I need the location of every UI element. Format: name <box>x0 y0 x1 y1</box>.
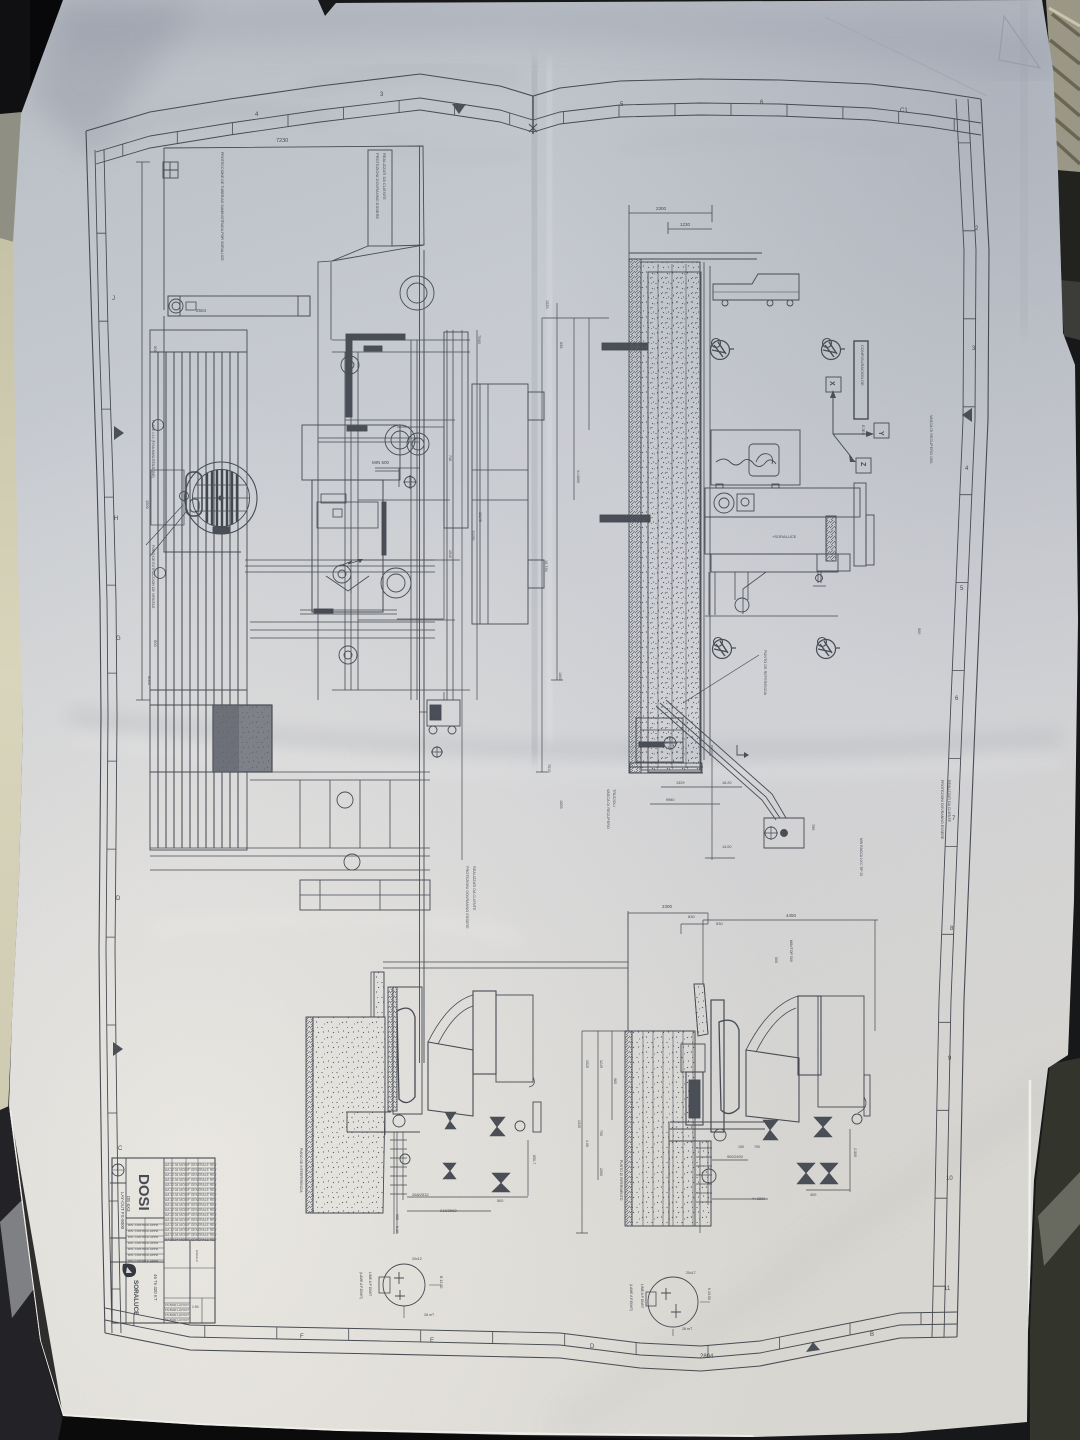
svg-text:1665: 1665 <box>558 672 562 680</box>
svg-text:4450: 4450 <box>786 913 797 918</box>
svg-text:2-500: 2-500 <box>853 1148 857 1157</box>
svg-text:6.10: 6.10 <box>395 1226 399 1233</box>
svg-text:46 Tn 320 KT: 46 Tn 320 KT <box>153 1274 158 1301</box>
svg-text:7563: 7563 <box>477 335 482 345</box>
svg-text:500: 500 <box>497 1199 503 1203</box>
svg-text:700: 700 <box>754 1145 760 1149</box>
svg-text:AA 12.04 MODIF GENERALE REV: AA 12.04 MODIF GENERALE REV <box>165 1188 217 1192</box>
svg-text:TRUCIOLI: TRUCIOLI <box>612 789 616 807</box>
svg-text:F: F <box>300 1334 304 1340</box>
svg-text:2300: 2300 <box>656 206 667 211</box>
svg-text:FS 8000 LAYOUT: FS 8000 LAYOUT <box>165 1308 189 1312</box>
svg-text:965: 965 <box>613 1078 617 1084</box>
svg-text:AA 12.04 MODIF GENERALE REV: AA 12.04 MODIF GENERALE REV <box>165 1193 217 1197</box>
svg-text:AA 12.04 MODIF GENERALE REV: AA 12.04 MODIF GENERALE REV <box>165 1228 217 1232</box>
svg-text:850-7: 850-7 <box>532 1155 536 1164</box>
svg-text:1545: 1545 <box>448 550 452 558</box>
svg-text:789: 789 <box>811 824 815 830</box>
svg-text:635: 635 <box>559 342 563 348</box>
svg-text:500: 500 <box>153 346 158 353</box>
svg-text:J: J <box>112 296 115 302</box>
svg-text:150: 150 <box>738 1145 744 1149</box>
svg-text:20x17: 20x17 <box>686 1271 696 1275</box>
svg-text:B: B <box>870 1332 874 1338</box>
svg-text:DIS. CONTROL APPR: DIS. CONTROL APPR <box>128 1247 159 1251</box>
svg-text:11195: 11195 <box>471 530 476 541</box>
svg-text:PLANE 1:10 (F.ISA MANUTENZIONE: PLANE 1:10 (F.ISA MANUTENZIONE) <box>151 420 155 478</box>
svg-text:(LAME A P.DIMIT): (LAME A P.DIMIT) <box>359 1272 363 1299</box>
svg-text:AA 12.04 MODIF GENERALE REV: AA 12.04 MODIF GENERALE REV <box>165 1173 217 1177</box>
svg-text:400: 400 <box>810 1193 816 1197</box>
svg-text:DOSI: DOSI <box>135 1174 152 1211</box>
svg-text:748: 748 <box>448 455 452 461</box>
svg-text:AA 12.04 MODIF GENERALE REV: AA 12.04 MODIF GENERALE REV <box>165 1218 217 1222</box>
svg-text:REALIZZATI DA CLIENTE: REALIZZATI DA CLIENTE <box>382 153 387 200</box>
svg-text:PROTEZIONI DOVRANNO ESSERE: PROTEZIONI DOVRANNO ESSERE <box>940 780 944 840</box>
svg-text:20x12: 20x12 <box>412 1257 422 1261</box>
svg-text:700: 700 <box>599 1130 603 1136</box>
svg-text:28 mT: 28 mT <box>424 1313 435 1317</box>
svg-text:1230: 1230 <box>680 222 691 227</box>
svg-text:FS 8000 LAYOUT: FS 8000 LAYOUT <box>165 1313 189 1317</box>
svg-text:1329: 1329 <box>676 781 684 785</box>
svg-text:AA 12.04 MODIF GENERALE REV: AA 12.04 MODIF GENERALE REV <box>165 1178 217 1182</box>
svg-text:AA 12.04 MODIF GENERALE REV: AA 12.04 MODIF GENERALE REV <box>165 1238 217 1242</box>
svg-text:D: D <box>116 896 121 902</box>
svg-text:AA 12.04 MODIF GENERALE REV: AA 12.04 MODIF GENERALE REV <box>165 1168 217 1172</box>
svg-text:900/2400: 900/2400 <box>727 1155 743 1159</box>
svg-text:FS 8000 LAYOUT: FS 8000 LAYOUT <box>165 1318 189 1322</box>
svg-text:218/2582: 218/2582 <box>440 1208 457 1213</box>
svg-text:530: 530 <box>716 921 723 926</box>
svg-text:Y=2800: Y=2800 <box>752 1197 765 1201</box>
svg-text:(LAME A P.DIMIT): (LAME A P.DIMIT) <box>629 1284 633 1311</box>
svg-text:7230: 7230 <box>276 138 288 144</box>
svg-text:DIS. CONTROL APPR: DIS. CONTROL APPR <box>128 1253 159 1257</box>
svg-text:AA 12.04 MODIF GENERALE REV: AA 12.04 MODIF GENERALE REV <box>165 1163 217 1167</box>
svg-text:6.13.50: 6.13.50 <box>707 1288 711 1300</box>
svg-text:DIS. CONTROL APPR: DIS. CONTROL APPR <box>128 1223 159 1227</box>
svg-text:1005: 1005 <box>559 800 563 808</box>
svg-text:ESCALA: ESCALA <box>195 1250 199 1262</box>
svg-text:6005: 6005 <box>147 676 152 686</box>
svg-text:AA 12.04 MODIF GENERALE REV: AA 12.04 MODIF GENERALE REV <box>165 1183 217 1187</box>
svg-text:4.00: 4.00 <box>585 1140 589 1147</box>
svg-text:500: 500 <box>917 628 921 634</box>
svg-text:14.00: 14.00 <box>722 845 732 849</box>
svg-text:AA 12.04 MODIF GENERALE REV: AA 12.04 MODIF GENERALE REV <box>165 1233 217 1237</box>
svg-text:DIS. CONTROL APPR: DIS. CONTROL APPR <box>128 1229 159 1233</box>
svg-text:AA 12.04 MODIF GENERALE REV: AA 12.04 MODIF GENERALE REV <box>165 1213 217 1217</box>
svg-text:PUNTO DI RIFERIMENTO: PUNTO DI RIFERIMENTO <box>619 1160 623 1201</box>
svg-text:G: G <box>116 636 121 642</box>
svg-text:830: 830 <box>688 914 695 919</box>
svg-text:1525: 1525 <box>585 1060 589 1068</box>
svg-text:B 13 50: B 13 50 <box>439 1276 443 1288</box>
svg-text:DIS. CONTROL APPR: DIS. CONTROL APPR <box>128 1259 159 1263</box>
svg-text:500: 500 <box>153 640 158 647</box>
svg-text:PIANO DE INTERFERENCIA: PIANO DE INTERFERENCIA <box>299 1148 303 1193</box>
svg-text:1:50: 1:50 <box>192 1305 199 1309</box>
svg-text:505: 505 <box>774 957 778 963</box>
svg-text:28 mT: 28 mT <box>682 1327 693 1331</box>
svg-text:FORO DE EXTRACCION DE VIRUTAS: FORO DE EXTRACCION DE VIRUTAS <box>151 545 155 609</box>
svg-text:LIME A P DIMIT: LIME A P DIMIT <box>640 1284 644 1308</box>
svg-text:2804: 2804 <box>700 1354 714 1360</box>
svg-text:1500: 1500 <box>145 500 150 510</box>
svg-text:10: 10 <box>946 1176 953 1182</box>
svg-text:2504: 2504 <box>196 308 207 313</box>
svg-text:CONFIGURACION DE: CONFIGURACION DE <box>860 345 865 386</box>
svg-text:REALIZZATI DA CLIENTE: REALIZZATI DA CLIENTE <box>947 780 951 823</box>
svg-text:DE 6X3: DE 6X3 <box>126 1196 131 1212</box>
svg-text:11: 11 <box>944 1286 951 1292</box>
svg-text:1525: 1525 <box>545 300 549 308</box>
svg-text:DIS. CONTROL APPR: DIS. CONTROL APPR <box>128 1241 159 1245</box>
svg-text:X: X <box>828 381 835 386</box>
svg-text:REALIZZATI DA CLIENTE: REALIZZATI DA CLIENTE <box>472 866 476 911</box>
svg-text:PROTEZIONI DOVRANNO ESSERE: PROTEZIONI DOVRANNO ESSERE <box>465 866 469 929</box>
svg-text:AA 12.04 MODIF GENERALE REV: AA 12.04 MODIF GENERALE REV <box>165 1208 217 1212</box>
svg-text:E: E <box>430 1338 434 1344</box>
svg-text:VASCA DI RECUPERO 100L: VASCA DI RECUPERO 100L <box>929 415 933 464</box>
svg-text:2300: 2300 <box>662 904 673 909</box>
svg-text:VASCA DI RECUPERO: VASCA DI RECUPERO <box>606 789 610 829</box>
svg-text:DIS. CONTROL APPR: DIS. CONTROL APPR <box>128 1235 159 1239</box>
svg-text:16.736: 16.736 <box>544 560 548 572</box>
svg-text:C: C <box>118 1146 123 1152</box>
svg-text:1249: 1249 <box>599 1060 603 1068</box>
svg-text:EJES: EJES <box>861 425 866 435</box>
svg-text:MIN/TOP 500: MIN/TOP 500 <box>789 940 793 962</box>
svg-text:PROTECCIONE DE TUBERIAS SUMINI: PROTECCIONE DE TUBERIAS SUMINISTRADA POR… <box>220 152 224 261</box>
svg-text:MIN RACCA 1000 TIP 25: MIN RACCA 1000 TIP 25 <box>859 838 863 876</box>
svg-text:PUNTO DE REFERENCIA: PUNTO DE REFERENCIA <box>763 650 767 696</box>
svg-text:9980: 9980 <box>666 798 674 802</box>
svg-text:AA 12.04 MODIF GENERALE REV: AA 12.04 MODIF GENERALE REV <box>165 1223 217 1227</box>
svg-text:268/2532: 268/2532 <box>412 1192 429 1197</box>
svg-text:AA 12.04 MODIF GENERALE REV: AA 12.04 MODIF GENERALE REV <box>165 1198 217 1202</box>
svg-text:C1: C1 <box>900 108 908 114</box>
svg-text:Z: Z <box>859 462 866 467</box>
svg-text:MIN 500: MIN 500 <box>372 460 390 465</box>
svg-text:AA 12.04 MODIF GENERALE REV: AA 12.04 MODIF GENERALE REV <box>165 1203 217 1207</box>
svg-text:FS 8000 LAYOUT: FS 8000 LAYOUT <box>165 1303 189 1307</box>
svg-text:10245: 10245 <box>478 512 482 522</box>
svg-text:16.20: 16.20 <box>722 781 732 785</box>
svg-text:1345: 1345 <box>577 1120 581 1128</box>
svg-text:SORALUCE: SORALUCE <box>132 1280 139 1315</box>
svg-text:X=4000: X=4000 <box>576 470 580 483</box>
svg-text:Y: Y <box>877 431 884 436</box>
svg-text:+SORALUCE: +SORALUCE <box>772 534 797 539</box>
svg-text:LIME A P DIMIT: LIME A P DIMIT <box>368 1272 372 1296</box>
svg-text:LAY-OUT FS-8000: LAY-OUT FS-8000 <box>120 1192 125 1230</box>
svg-text:2000: 2000 <box>599 1168 603 1176</box>
svg-text:D: D <box>590 1344 595 1350</box>
svg-text:7015: 7015 <box>547 764 551 772</box>
svg-text:H: H <box>114 516 118 522</box>
svg-text:PROTEZIONI DOVRANNO ESSERE: PROTEZIONI DOVRANNO ESSERE <box>375 153 380 219</box>
svg-text:968: 968 <box>395 1214 399 1220</box>
